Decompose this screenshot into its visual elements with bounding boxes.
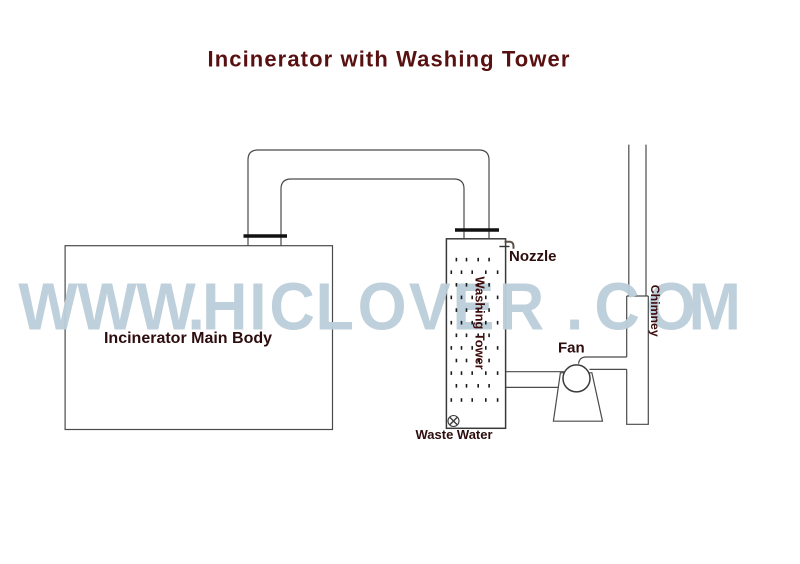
svg-text:Waste Water: Waste Water	[416, 427, 493, 442]
svg-text:Chimney: Chimney	[648, 285, 662, 337]
svg-text:Incinerator Main Body: Incinerator Main Body	[104, 330, 272, 347]
svg-text:Fan: Fan	[558, 340, 585, 357]
svg-text:Incinerator with Washing Tower: Incinerator with Washing Tower	[207, 47, 570, 72]
svg-text:Washing Tower: Washing Tower	[473, 277, 488, 370]
svg-text:Nozzle: Nozzle	[509, 248, 557, 265]
